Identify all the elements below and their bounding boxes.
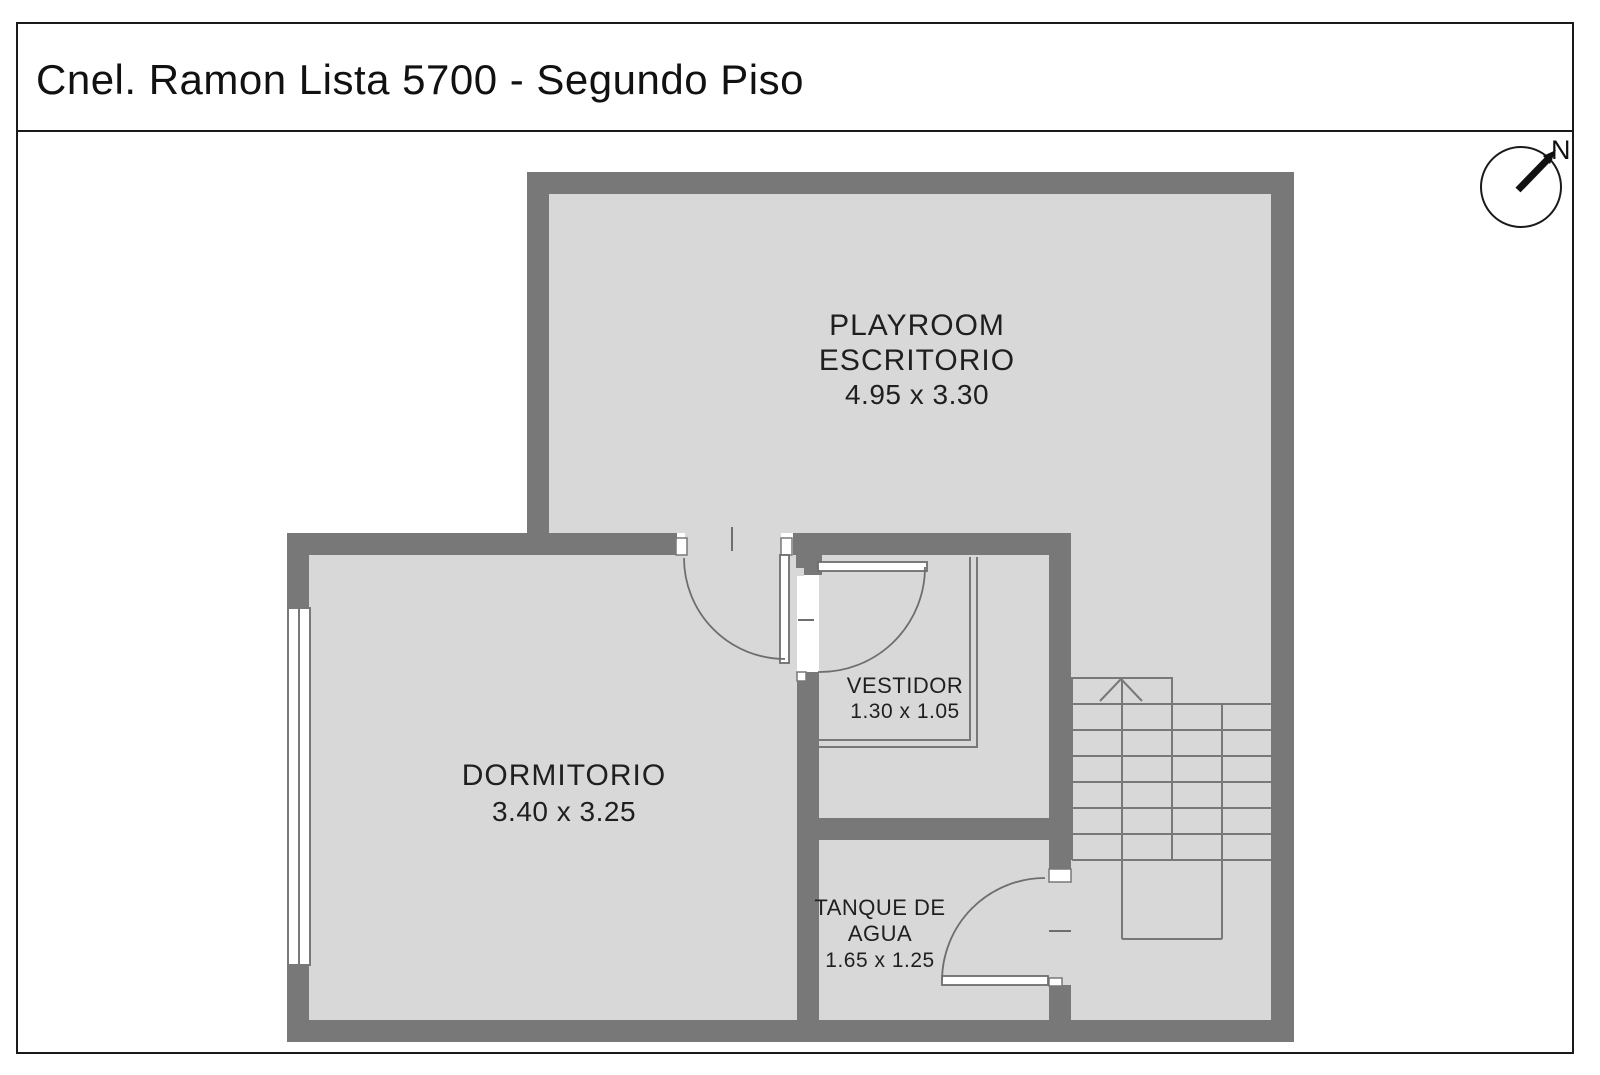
dormitorio-door-leaf — [780, 555, 789, 663]
wall-playroom-top — [527, 172, 1294, 194]
playroom-dimensions: 4.95 x 3.30 — [845, 379, 989, 410]
tanque-label-line2: AGUA — [848, 921, 912, 946]
wall-end-cap — [797, 672, 806, 681]
stair-area-floor — [1049, 533, 1271, 1020]
wall-right — [1271, 172, 1294, 1042]
vestidor-label: VESTIDOR — [847, 673, 963, 698]
door-jamb-cap — [1049, 978, 1062, 986]
vestidor-door-leaf — [818, 562, 927, 571]
door-jamb-cap — [781, 538, 792, 555]
compass-north-label: N — [1551, 135, 1571, 165]
page-title: Cnel. Ramon Lista 5700 - Segundo Piso — [36, 56, 804, 103]
door-jamb-cap — [1049, 869, 1071, 882]
wall-stair-left — [1049, 555, 1071, 875]
wall-vestidor-top — [793, 533, 1071, 555]
wall-dormitorio-right — [797, 672, 819, 1020]
floor-plan-canvas: Cnel. Ramon Lista 5700 - Segundo Piso N — [0, 0, 1600, 1075]
vestidor-door-jamb-notch — [796, 568, 804, 576]
dormitorio-dimensions: 3.40 x 3.25 — [492, 796, 636, 827]
tanque-dimensions: 1.65 x 1.25 — [825, 949, 934, 972]
dormitorio-window — [288, 608, 310, 965]
playroom-label-line1: PLAYROOM — [829, 309, 1005, 342]
wall-vestidor-tanque-divider — [797, 818, 1071, 840]
playroom-label-line2: ESCRITORIO — [819, 344, 1015, 377]
wall-tanque-door-stub — [1049, 985, 1071, 1020]
wall-playroom-left — [527, 172, 549, 533]
dormitorio-label: DORMITORIO — [462, 759, 666, 792]
tanque-label-line1: TANQUE DE — [814, 895, 945, 920]
door-jamb-cap — [676, 538, 687, 555]
vestidor-dimensions: 1.30 x 1.05 — [850, 700, 959, 723]
tanque-door-leaf — [942, 976, 1048, 985]
wall-dormitorio-top — [287, 533, 677, 555]
floor-plan-page: Cnel. Ramon Lista 5700 - Segundo Piso N — [0, 0, 1600, 1075]
wall-bottom — [287, 1020, 1294, 1042]
